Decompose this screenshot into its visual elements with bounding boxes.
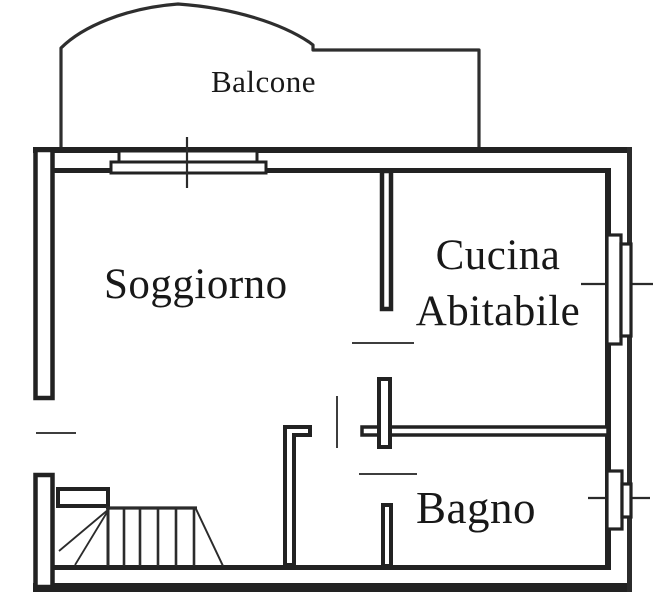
bathroom-north-wall xyxy=(362,427,608,435)
stair-winder-line xyxy=(59,509,109,551)
inner-wall-bottom xyxy=(53,565,610,570)
opening-marks xyxy=(36,343,417,474)
door-leaf xyxy=(379,379,390,447)
hall-wall xyxy=(285,427,310,565)
stair-landing xyxy=(58,489,108,506)
left-wall-upper xyxy=(36,150,53,398)
room-label-balcone: Balcone xyxy=(211,66,316,97)
kitchen-partition-wall xyxy=(382,171,391,309)
room-label-soggiorno: Soggiorno xyxy=(104,263,288,306)
outer-wall-bottom xyxy=(33,583,632,592)
outer-wall-right xyxy=(627,147,632,592)
room-label-cucina: Cucina Abitabile xyxy=(392,234,604,333)
stair-winder-line xyxy=(75,509,109,565)
stair-run-diagonal xyxy=(196,509,223,566)
room-label-bagno: Bagno xyxy=(416,486,536,531)
staircase xyxy=(58,489,223,566)
room-label-cucina-line2: Abitabile xyxy=(392,290,604,333)
left-wall-lower xyxy=(36,475,53,587)
bathroom-door-jamb xyxy=(383,505,391,566)
balcony-window xyxy=(111,137,266,188)
bathroom-window xyxy=(588,471,650,529)
room-label-cucina-line1: Cucina xyxy=(392,234,604,277)
floor-plan: Balcone Soggiorno Cucina Abitabile Bagno xyxy=(0,0,671,600)
